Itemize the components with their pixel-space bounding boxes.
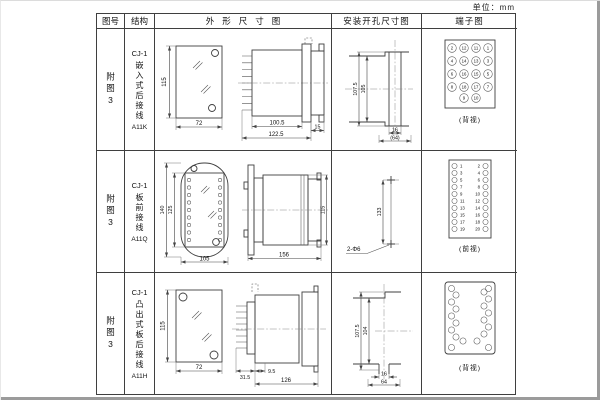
terminal-number: 16 — [475, 212, 480, 217]
terminal-number: 15 — [460, 212, 465, 217]
install-cell-row2: 133 2-Φ6 — [332, 151, 422, 273]
terminal-number: 9 — [462, 95, 465, 100]
outline-drawing-a11h: 115 72 31.5 9.5 126 — [156, 276, 331, 392]
outline-cell-row1: 115 72 100.5 122.5 — [155, 29, 332, 151]
document-page: 单位：mm 图号 结构 外形尺寸图 安装开孔尺寸图 端子图 附图3 CJ-1 嵌… — [0, 0, 600, 400]
dim-label: 133 — [377, 207, 383, 216]
unit-label: 单位：mm — [473, 2, 515, 13]
terminal-numbers: 1 3 5 7 9 11 13 15 17 19 2 4 6 8 10 12 1 — [460, 163, 481, 231]
terminal-cell-row3: (背视) — [422, 273, 517, 395]
figure-no-cell-row2: 附图3 — [97, 151, 125, 273]
model-row2: CJ-1 — [132, 181, 148, 190]
dim-label: 16 — [392, 127, 398, 133]
dim-label: 115 — [160, 321, 166, 331]
terminal-number: 1 — [486, 45, 489, 50]
terminal-number: 9 — [460, 191, 463, 196]
install-drawing-a11q: 133 2-Φ6 — [333, 154, 421, 270]
header-install-label: 安装开孔尺寸图 — [343, 15, 410, 27]
spec-table: 图号 结构 外形尺寸图 安装开孔尺寸图 端子图 附图3 CJ-1 嵌入式后接线 … — [96, 13, 516, 395]
terminal-number: 16 — [461, 71, 466, 76]
terminal-number: 18 — [461, 84, 466, 89]
terminal-number: 11 — [473, 45, 478, 50]
terminal-number: 8 — [477, 184, 480, 189]
terminal-number: 3 — [486, 58, 489, 63]
dim-label: 122.5 — [268, 132, 284, 138]
terminal-number: 1 — [460, 163, 463, 168]
figure-no-row3: 附图3 — [105, 316, 117, 352]
header-install: 安装开孔尺寸图 — [332, 14, 422, 29]
glass-hatch-icon — [193, 61, 211, 94]
terminal-number: 2 — [450, 45, 453, 50]
header-outline: 外形尺寸图 — [155, 14, 332, 29]
terminal-number: 5 — [460, 177, 463, 182]
terminal-number: 15 — [473, 71, 478, 76]
terminal-cell-row2: 1 3 5 7 9 11 13 15 17 19 2 4 6 8 10 12 1 — [422, 151, 517, 273]
dim-label: 64 — [381, 380, 387, 386]
outline-drawing-a11q: 140 125 105 156 — [156, 154, 331, 270]
terminal-circles — [447, 43, 492, 102]
terminal-number: 7 — [460, 184, 463, 189]
dim-label: 140 — [160, 205, 166, 214]
terminal-drawing-a11k: 2 12 11 1 4 14 13 3 6 16 15 5 8 18 17 7 — [425, 34, 515, 146]
dim-label: 9.5 — [268, 369, 275, 375]
terminal-number: 4 — [477, 170, 480, 175]
dim-label: 31.5 — [239, 375, 249, 381]
code-row3: A11H — [132, 373, 148, 380]
terminal-number: 6 — [477, 177, 480, 182]
outline-cell-row3: 115 72 31.5 9.5 126 — [155, 273, 332, 395]
terminal-number: 17 — [460, 219, 465, 224]
dim-label: 115 — [162, 76, 168, 86]
model-row1: CJ-1 — [132, 49, 148, 58]
terminal-pins-icon — [236, 306, 247, 348]
mount-type-row3: 凸出式板后接线 — [134, 300, 145, 370]
view-label: (背视) — [458, 115, 480, 124]
terminal-number: 14 — [475, 205, 480, 210]
terminal-number: 12 — [475, 198, 480, 203]
structure-cell-row3: CJ-1 凸出式板后接线 A11H — [125, 273, 155, 395]
terminal-number: 20 — [475, 226, 480, 231]
terminal-number: 6 — [450, 71, 453, 76]
terminal-number: 3 — [460, 170, 463, 175]
terminal-number: 11 — [460, 198, 465, 203]
terminal-number: 8 — [450, 84, 453, 89]
dim-label: 104 — [363, 327, 369, 336]
terminal-drawing-a11q: 1 3 5 7 9 11 13 15 17 19 2 4 6 8 10 12 1 — [425, 156, 515, 268]
terminal-cell-row1: 2 12 11 1 4 14 13 3 6 16 15 5 8 18 17 7 — [422, 29, 517, 151]
dim-label: 105 — [199, 256, 210, 262]
terminal-number: 12 — [461, 45, 466, 50]
terminal-number: 19 — [460, 226, 465, 231]
terminal-number: 14 — [461, 58, 466, 63]
terminal-circles — [451, 163, 487, 231]
dim-label: 105 — [361, 84, 367, 93]
header-figure-no-label: 图号 — [102, 15, 119, 27]
hole-callout-label: 2-Φ6 — [347, 247, 361, 253]
install-cell-row1: 107.5 105 16 (64) — [332, 29, 422, 151]
header-terminal-label: 端子图 — [455, 15, 484, 27]
header-figure-no: 图号 — [97, 14, 125, 29]
terminal-number: 10 — [475, 191, 480, 196]
seal-hook-icon — [305, 38, 312, 44]
terminal-circles — [448, 285, 491, 350]
dim-label: 126 — [280, 378, 291, 384]
dim-label: 107.5 — [355, 324, 361, 337]
figure-no-cell-row3: 附图3 — [97, 273, 125, 395]
dim-label: 72 — [195, 121, 202, 127]
dim-label: 100.5 — [269, 120, 285, 126]
terminal-dots — [187, 178, 221, 241]
terminal-number: 13 — [473, 58, 478, 63]
dim-label: 15 — [314, 124, 320, 130]
dim-label: 72 — [195, 365, 202, 371]
figure-no-row2: 附图3 — [105, 194, 117, 230]
header-outline-label: 外形尺寸图 — [198, 15, 289, 27]
mount-type-row1: 嵌入式后接线 — [134, 61, 145, 121]
seal-hook-icon — [252, 284, 258, 292]
install-drawing-a11h: 107.5 104 16 64 — [333, 276, 421, 392]
install-drawing-a11k: 107.5 105 16 (64) — [333, 32, 421, 148]
code-row2: A11Q — [131, 236, 147, 243]
dim-label: 115 — [320, 205, 326, 213]
dim-label: 16 — [381, 371, 387, 377]
header-structure-label: 结构 — [131, 15, 148, 27]
dim-label: (64) — [390, 135, 400, 141]
glass-hatch-icon — [201, 186, 217, 219]
dim-label: 125 — [168, 205, 174, 214]
header-terminal: 端子图 — [422, 14, 517, 29]
outline-cell-row2: 140 125 105 156 — [155, 151, 332, 273]
terminal-drawing-a11h: (背视) — [425, 278, 515, 390]
terminal-number: 7 — [486, 84, 489, 89]
terminal-number: 2 — [477, 163, 480, 168]
terminal-number: 5 — [486, 71, 489, 76]
terminal-number: 10 — [473, 95, 478, 100]
structure-cell-row1: CJ-1 嵌入式后接线 A11K — [125, 29, 155, 151]
code-row1: A11K — [132, 124, 147, 131]
view-label: (前视) — [458, 244, 480, 253]
figure-no-row1: 附图3 — [105, 72, 117, 108]
terminal-number: 13 — [460, 205, 465, 210]
header-structure: 结构 — [125, 14, 155, 29]
view-label: (背视) — [458, 363, 480, 372]
dim-label: 107.5 — [353, 82, 359, 95]
figure-no-cell-row1: 附图3 — [97, 29, 125, 151]
mount-type-row2: 板前接线 — [134, 193, 145, 233]
terminal-number: 4 — [450, 58, 453, 63]
model-row3: CJ-1 — [132, 288, 148, 297]
dim-label: 156 — [278, 252, 289, 258]
install-cell-row3: 107.5 104 16 64 — [332, 273, 422, 395]
glass-hatch-icon — [192, 311, 212, 342]
terminal-number: 18 — [475, 219, 480, 224]
outline-drawing-a11k: 115 72 100.5 122.5 — [156, 32, 331, 148]
terminal-number: 17 — [473, 84, 478, 89]
structure-cell-row2: CJ-1 板前接线 A11Q — [125, 151, 155, 273]
